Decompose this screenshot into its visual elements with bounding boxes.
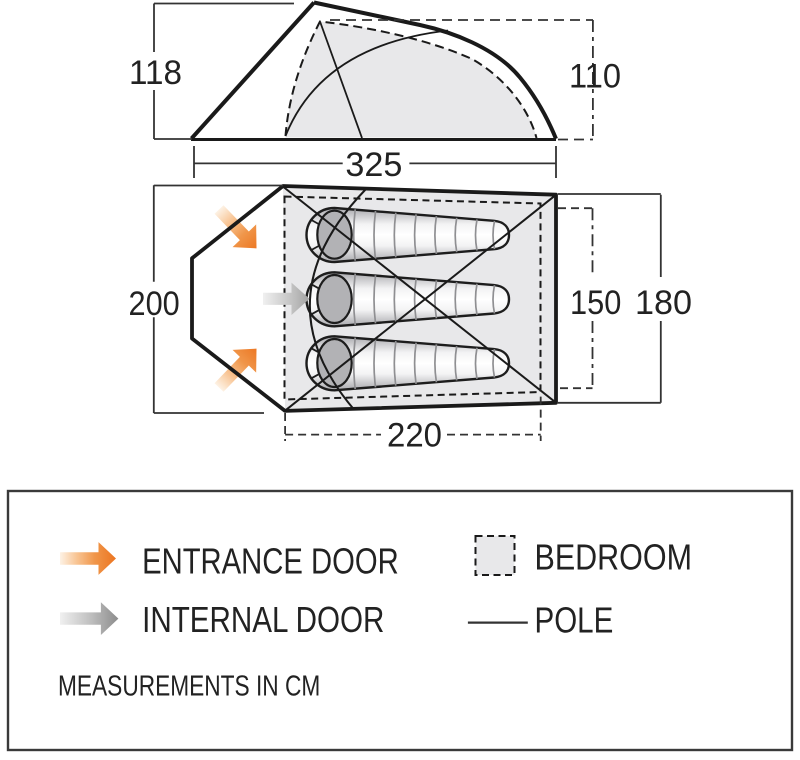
svg-text:INTERNAL DOOR: INTERNAL DOOR bbox=[142, 599, 384, 640]
svg-text:180: 180 bbox=[635, 284, 692, 322]
svg-text:ENTRANCE DOOR: ENTRANCE DOOR bbox=[142, 541, 399, 582]
svg-text:MEASUREMENTS IN CM: MEASUREMENTS IN CM bbox=[58, 671, 320, 703]
svg-text:POLE: POLE bbox=[535, 600, 614, 641]
svg-text:220: 220 bbox=[387, 417, 442, 455]
svg-text:BEDROOM: BEDROOM bbox=[535, 537, 693, 578]
svg-text:118: 118 bbox=[129, 54, 182, 92]
svg-text:200: 200 bbox=[129, 285, 180, 323]
svg-text:150: 150 bbox=[570, 284, 621, 322]
svg-text:325: 325 bbox=[345, 146, 402, 184]
svg-text:110: 110 bbox=[569, 58, 621, 96]
